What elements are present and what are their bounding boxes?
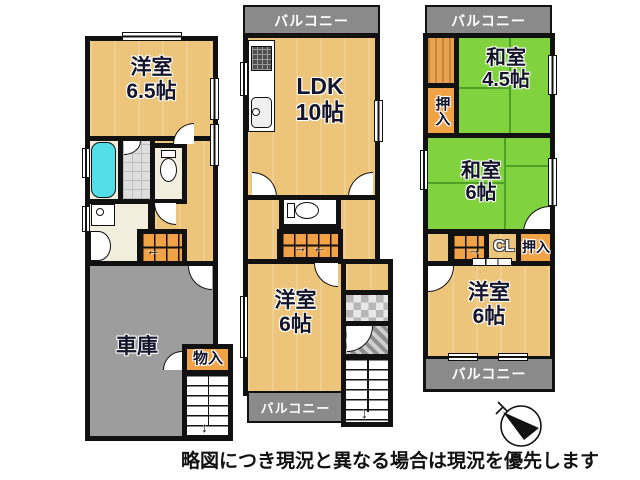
stairs-2f-down-arrow-icon: ↓: [361, 405, 368, 421]
window-3f-right-lower: [548, 158, 557, 206]
washitsu-4_5-label: 和室4.5帖: [462, 45, 550, 93]
balcony-2f-bottom-label: バルコニー: [249, 393, 342, 421]
window-3f-left: [420, 150, 428, 190]
oshiire-lower-label: 押入: [520, 238, 552, 258]
exterior-stairs-2f: ↓: [341, 354, 393, 427]
window-3f-bottom-left: [448, 353, 478, 361]
window-1f-left-washroom: [82, 206, 90, 232]
bedroom-6_5-label: 洋室6.5帖: [95, 55, 208, 105]
window-3f-bottom-right: [498, 353, 528, 361]
sink-faucet-icon: [252, 108, 260, 116]
stairs-2f-arrow-left-icon: ←: [313, 240, 326, 255]
balcony-3f-bottom-label: バルコニー: [426, 359, 552, 389]
stairs-3f-arrow-right-icon: →: [468, 242, 481, 257]
stove-icon: [251, 46, 272, 71]
balcony-2f-top-label: バルコニー: [245, 7, 378, 35]
stairs-arrow-left-icon: ←: [146, 242, 160, 258]
toilet-2f-tank-icon: [287, 203, 295, 218]
monoire-label: 物入: [187, 348, 229, 370]
toilet-tank-icon: [161, 150, 176, 158]
disclaimer-text: 略図につき現況と異なる場合は現況を優先します: [181, 446, 640, 473]
window-1f-left-bath: [82, 148, 90, 178]
bathtub-icon: [91, 142, 116, 198]
stairs-arrow-down-icon: ↓: [201, 419, 208, 435]
ldk-label: LDK10帖: [270, 72, 370, 128]
balcony-3f-top-label: バルコニー: [427, 7, 550, 35]
sliding-door-icon: [472, 258, 512, 266]
compass-north-icon: [493, 400, 547, 450]
washitsu-6-label: 和室6帖: [437, 158, 525, 206]
window-2f-left-kitchen: [240, 62, 248, 96]
window-2f-left-bedroom: [240, 296, 248, 358]
washbasin-icon: [91, 204, 115, 226]
floor-plan-sheet: ← 車庫 物入 ↓ 洋室6.5帖 バルコニー: [0, 0, 640, 480]
exterior-stairs-1f: ↓: [182, 370, 233, 441]
garage-label: 車庫: [97, 333, 177, 361]
oshiire-upper-label: 押入: [427, 88, 455, 133]
toilet-2f-icon: [295, 202, 319, 219]
window-1f-top: [122, 32, 182, 41]
bedroom-2f-label: 洋室6帖: [253, 288, 338, 338]
window-1f-right-upper: [210, 78, 219, 120]
toilet-icon: [160, 158, 177, 182]
window-2f-right-ldk: [374, 100, 383, 142]
balcony-2f-bottom: バルコニー: [247, 391, 344, 423]
stairs-2f-arrow-right-icon: →: [294, 240, 307, 255]
washbasin-faucet-icon: [96, 208, 104, 216]
window-1f-right-lower: [210, 124, 219, 166]
balcony-3f-bottom: バルコニー: [423, 356, 555, 392]
window-3f-right-upper: [548, 55, 557, 95]
closet-cl-label: CL: [489, 236, 519, 258]
staircase-2f: → ←: [277, 229, 343, 262]
bedroom-3f-label: 洋室6帖: [445, 280, 533, 330]
